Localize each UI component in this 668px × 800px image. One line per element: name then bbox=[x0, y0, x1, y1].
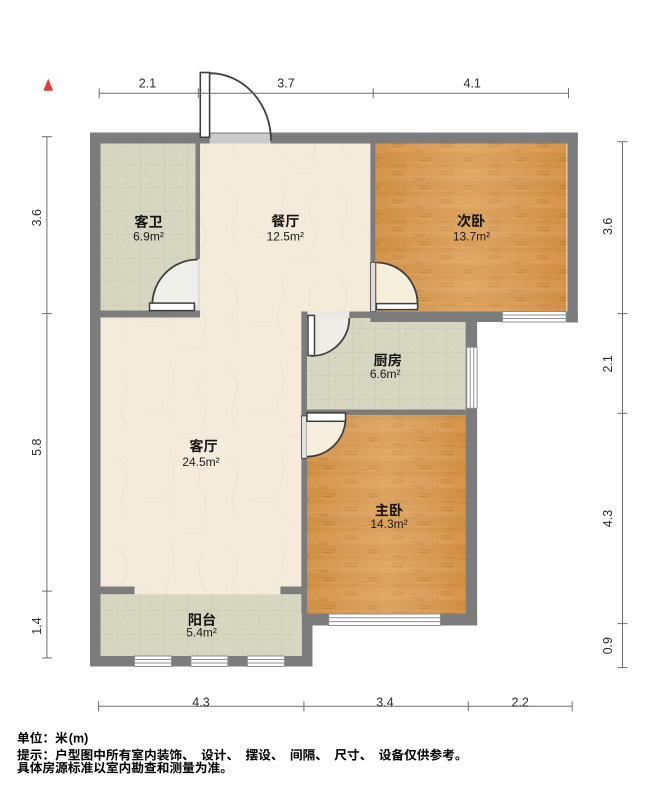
svg-text:3.4: 3.4 bbox=[376, 696, 393, 710]
svg-text:5.8: 5.8 bbox=[30, 438, 44, 455]
svg-text:0.9: 0.9 bbox=[601, 637, 615, 654]
svg-text:4.1: 4.1 bbox=[464, 77, 481, 91]
svg-text:12.5m²: 12.5m² bbox=[267, 229, 304, 243]
svg-text:6.6m²: 6.6m² bbox=[370, 367, 401, 381]
svg-text:24.5m²: 24.5m² bbox=[182, 455, 219, 469]
svg-text:4.3: 4.3 bbox=[192, 696, 209, 710]
svg-text:14.3m²: 14.3m² bbox=[370, 517, 407, 531]
svg-text:2.2: 2.2 bbox=[512, 696, 529, 710]
svg-text:4.3: 4.3 bbox=[601, 510, 615, 527]
svg-text:13.7m²: 13.7m² bbox=[453, 229, 490, 243]
svg-text:3.7: 3.7 bbox=[277, 77, 294, 91]
svg-text:2.1: 2.1 bbox=[601, 355, 615, 372]
svg-text:2.1: 2.1 bbox=[139, 77, 156, 91]
svg-text:3.6: 3.6 bbox=[601, 218, 615, 235]
svg-text:3.6: 3.6 bbox=[30, 209, 44, 226]
svg-text:1.4: 1.4 bbox=[30, 617, 44, 634]
svg-text:(m): (m) bbox=[69, 732, 88, 746]
svg-text:5.4m²: 5.4m² bbox=[186, 625, 217, 639]
svg-text:6.9m²: 6.9m² bbox=[133, 229, 164, 243]
